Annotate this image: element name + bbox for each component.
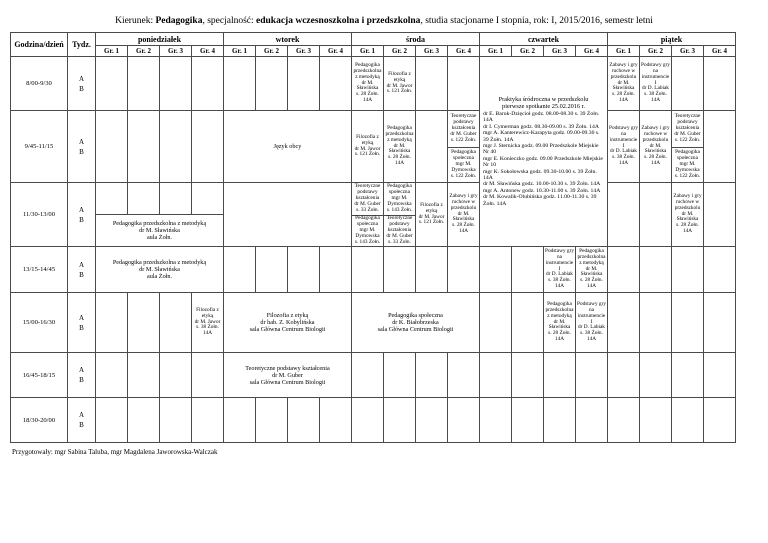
group-header: Gr. 1 — [480, 46, 512, 57]
empty-cell — [704, 398, 736, 443]
empty-cell — [704, 111, 736, 183]
empty-cell — [96, 398, 128, 443]
day-header-tuesday: wtorek — [224, 33, 352, 46]
empty-cell — [96, 57, 128, 111]
time-slot: 16/45-18/15 — [11, 353, 68, 398]
empty-cell — [256, 398, 288, 443]
empty-cell — [192, 57, 224, 111]
week-labels: AB — [68, 293, 96, 353]
prepared-by-note: Przygotowały: mgr Sabina Taluba, mgr Mag… — [12, 448, 768, 456]
empty-cell — [672, 247, 704, 293]
group-header: Gr. 3 — [416, 46, 448, 57]
group-header: Gr. 3 — [672, 46, 704, 57]
class-cell-week-b: Pedagogika przedszkolna z metodyką dr M.… — [96, 215, 223, 247]
class-cell-wed-g2-slot2: Pedagogika przedszkolna z metodyką dr M.… — [384, 111, 416, 183]
title-major: Pedagogika — [155, 16, 202, 26]
time-slot: 8/00-9/30 — [11, 57, 68, 111]
header-time-column: Godzina/dzień — [11, 33, 68, 57]
class-cell-thu-g3-slot4: Podstawy gry na instrumencie I dr D. Lab… — [544, 247, 576, 293]
empty-cell — [352, 353, 384, 398]
group-header: Gr. 2 — [128, 46, 160, 57]
empty-cell — [640, 183, 672, 247]
class-cell-week-a: Teoretyczne podstawy kształcenia dr M. G… — [352, 183, 383, 215]
empty-cell — [128, 183, 160, 214]
empty-cell — [128, 57, 160, 111]
empty-cell — [256, 57, 288, 111]
empty-cell — [608, 183, 640, 247]
time-slot: 15/00-16/30 — [11, 293, 68, 353]
empty-cell — [96, 183, 128, 214]
empty-cell — [608, 353, 640, 398]
empty-cell — [160, 57, 192, 111]
empty-cell — [480, 398, 512, 443]
empty-cell — [512, 247, 544, 293]
split-class-cell-fri-g3-slot2: Teoretyczne podstawy kształcenia dr M. G… — [672, 111, 704, 183]
timetable: Godzina/dzień Tydz. poniedziałek wtorek … — [10, 32, 736, 443]
week-labels: AB — [68, 247, 96, 293]
class-cell-thu-g3-slot5: Pedagogika przedszkolna z metodyką dr M.… — [544, 293, 576, 353]
empty-cell — [416, 247, 448, 293]
group-header: Gr. 4 — [320, 46, 352, 57]
week-labels: AB — [68, 183, 96, 247]
empty-cell — [288, 247, 320, 293]
group-header: Gr. 4 — [192, 46, 224, 57]
class-cell-week-a: Teoretyczne podstawy kształcenia dr M. G… — [672, 111, 703, 147]
empty-cell — [128, 293, 160, 353]
empty-cell — [704, 293, 736, 353]
header-week-column: Tydz. — [68, 33, 96, 57]
empty-cell — [160, 183, 192, 214]
empty-cell — [352, 247, 384, 293]
title-suffix: , studia stacjonarne I stopnia, rok: I, … — [420, 16, 652, 26]
empty-cell — [640, 353, 672, 398]
class-cell-week-a: Pedagogika społeczna mgr M. Dymowska s. … — [384, 183, 415, 215]
empty-cell — [352, 398, 384, 443]
group-header: Gr. 4 — [576, 46, 608, 57]
class-cell-week-b: Teoretyczne podstawy kształcenia dr M. G… — [384, 215, 415, 247]
empty-cell — [288, 398, 320, 443]
empty-cell — [416, 398, 448, 443]
empty-cell — [128, 111, 160, 183]
empty-cell — [672, 398, 704, 443]
empty-cell — [416, 57, 448, 111]
empty-cell — [192, 183, 223, 214]
split-class-cell-mon-all-slot3: Pedagogika przedszkolna z metodyką dr M.… — [96, 183, 224, 247]
empty-cell — [512, 398, 544, 443]
title-specialty: edukacja wczesnoszkolna i przedszkolna — [256, 16, 420, 26]
time-slot: 13/15-14/45 — [11, 247, 68, 293]
group-header: Gr. 1 — [224, 46, 256, 57]
week-labels: AB — [68, 353, 96, 398]
week-a-empty-row — [96, 183, 223, 215]
week-a-label: A — [68, 260, 95, 270]
empty-cell — [160, 353, 192, 398]
empty-cell — [480, 293, 512, 353]
day-header-wednesday: środa — [352, 33, 480, 46]
split-class-cell-wed-g1-slot3: Teoretyczne podstawy kształcenia dr M. G… — [352, 183, 384, 247]
empty-cell — [384, 247, 416, 293]
week-a-label: A — [68, 74, 95, 84]
group-header: Gr. 4 — [448, 46, 480, 57]
group-header: Gr. 1 — [608, 46, 640, 57]
empty-cell — [448, 398, 480, 443]
class-cell-mon-all-slot4: Pedagogika przedszkolna z metodyką dr M.… — [96, 247, 224, 293]
group-header: Gr. 3 — [544, 46, 576, 57]
empty-cell — [160, 398, 192, 443]
empty-cell — [512, 353, 544, 398]
empty-cell — [608, 398, 640, 443]
group-header: Gr. 3 — [160, 46, 192, 57]
week-b-label: B — [68, 323, 95, 333]
empty-cell — [672, 57, 704, 111]
empty-cell — [160, 293, 192, 353]
week-b-label: B — [68, 375, 95, 385]
week-a-label: A — [68, 205, 95, 215]
praktyka-cell-thursday: Praktyka śródroczna w przedszkolu pierws… — [480, 57, 608, 247]
class-cell-wed-g1-slot1: Pedagogika przedszkolna z metodyką dr M.… — [352, 57, 384, 111]
empty-cell — [608, 247, 640, 293]
empty-cell — [544, 353, 576, 398]
empty-cell — [192, 111, 224, 183]
empty-cell — [672, 293, 704, 353]
class-cell-mon-g4-slot5: Filozofia z etyką dr M. Jawor s. 38 Żołn… — [192, 293, 224, 353]
empty-cell — [192, 398, 224, 443]
class-cell-fri-g2-slot1: Podstawy gry na instrumencie I dr D. Lab… — [640, 57, 672, 111]
empty-cell — [448, 57, 480, 111]
class-cell-tue-all-slot6: Teoretyczne podstawy kształcenia dr M. G… — [224, 353, 352, 398]
week-b-label: B — [68, 270, 95, 280]
class-cell-wed-g4-slot3: Zabawy i gry ruchowe w przedszkolu dr M.… — [448, 183, 480, 247]
week-labels: AB — [68, 111, 96, 183]
time-slot: 11/30-13/00 — [11, 183, 68, 247]
empty-cell — [480, 247, 512, 293]
empty-cell — [192, 353, 224, 398]
week-a-label: A — [68, 365, 95, 375]
week-b-label: B — [68, 147, 95, 157]
class-cell-wed-g1-slot2: Filozofia z etyką dr M. Jawor s. 121 Żoł… — [352, 111, 384, 183]
empty-cell — [608, 293, 640, 353]
empty-cell — [416, 353, 448, 398]
week-b-label: B — [68, 84, 95, 94]
class-cell-week-b: Pedagogika społeczna mgr M. Dymowska s. … — [672, 147, 703, 183]
class-cell-week-b: Pedagogika społeczna mgr M. Dymowska s. … — [352, 215, 383, 247]
praktyka-subtitle: pierwsze spotkanie 25.02.2016 r. — [480, 103, 607, 110]
group-header: Gr. 2 — [512, 46, 544, 57]
class-cell-tue-all-slot2: Język obcy — [224, 111, 352, 183]
empty-cell — [320, 57, 352, 111]
week-b-label: B — [68, 215, 95, 225]
title-separator: , specjalność: — [202, 16, 256, 26]
empty-cell — [384, 353, 416, 398]
week-a-label: A — [68, 313, 95, 323]
class-cell-fri-g1-slot2: Podstawy gry na instrumencie I dr D. Lab… — [608, 111, 640, 183]
empty-cell — [416, 111, 448, 183]
empty-cell — [96, 353, 128, 398]
empty-cell — [672, 353, 704, 398]
day-header-monday: poniedziałek — [96, 33, 224, 46]
empty-cell — [704, 353, 736, 398]
title-prefix: Kierunek: — [115, 16, 155, 26]
group-header: Gr. 4 — [704, 46, 736, 57]
group-header: Gr. 3 — [288, 46, 320, 57]
empty-cell — [704, 183, 736, 247]
class-cell-wed-g2-slot1: Filozofia z etyką dr M. Jawor s. 121 Żoł… — [384, 57, 416, 111]
split-class-cell-wed-g4-slot2: Teoretyczne podstawy kształcenia dr M. G… — [448, 111, 480, 183]
week-labels: AB — [68, 57, 96, 111]
empty-cell — [384, 398, 416, 443]
class-cell-fri-g1-slot1: Zabawy i gry ruchowe w przedszkolu dr M.… — [608, 57, 640, 111]
class-cell-week-b: Pedagogika społeczna mgr M. Dymowska s. … — [448, 147, 479, 183]
day-header-thursday: czwartek — [480, 33, 608, 46]
empty-cell — [224, 247, 256, 293]
split-class-cell-wed-g2-slot3: Pedagogika społeczna mgr M. Dymowska s. … — [384, 183, 416, 247]
empty-cell — [320, 247, 352, 293]
time-slot: 9/45-11/15 — [11, 111, 68, 183]
class-cell-wed-g3-slot3: Filozofia z etyką dr M. Jawor s. 121 Żoł… — [416, 183, 448, 247]
class-cell-fri-g2-slot2: Zabawy i gry ruchowe w przedszkolu dr M.… — [640, 111, 672, 183]
group-header: Gr. 2 — [384, 46, 416, 57]
group-header: Gr. 2 — [256, 46, 288, 57]
page-title: Kierunek: Pedagogika, specjalność: eduka… — [0, 0, 768, 26]
empty-cell — [96, 293, 128, 353]
empty-cell — [160, 111, 192, 183]
empty-cell — [448, 353, 480, 398]
week-labels: AB — [68, 398, 96, 443]
class-cell-fri-g3-slot3: Zabawy i gry ruchowe w przedszkolu dr M.… — [672, 183, 704, 247]
group-header: Gr. 2 — [640, 46, 672, 57]
empty-cell — [640, 293, 672, 353]
time-slot: 18/30-20/00 — [11, 398, 68, 443]
class-cell-wed-all-slot5: Pedagogika społeczna dr K. Białobrzeska … — [352, 293, 480, 353]
empty-cell — [704, 57, 736, 111]
empty-cell — [576, 353, 608, 398]
empty-cell — [640, 398, 672, 443]
praktyka-entries: dr E. Baruk-Dzięcioł godz. 08.00-08.30 s… — [480, 111, 607, 207]
empty-cell — [448, 247, 480, 293]
empty-cell — [128, 398, 160, 443]
empty-cell — [96, 111, 128, 183]
empty-cell — [320, 398, 352, 443]
empty-cell — [224, 398, 256, 443]
class-cell-tue-all-slot5: Filozofia z etyką dr hab. Z. Kobylińska … — [224, 293, 352, 353]
empty-cell — [576, 398, 608, 443]
empty-cell — [512, 293, 544, 353]
group-header: Gr. 1 — [96, 46, 128, 57]
week-a-label: A — [68, 137, 95, 147]
empty-cell — [128, 353, 160, 398]
empty-cell — [288, 57, 320, 111]
class-cell-week-a: Teoretyczne podstawy kształcenia dr M. G… — [448, 111, 479, 147]
week-a-label: A — [68, 410, 95, 420]
day-header-friday: piątek — [608, 33, 736, 46]
group-header: Gr. 1 — [352, 46, 384, 57]
praktyka-title: Praktyka śródroczna w przedszkolu — [480, 96, 607, 103]
empty-cell — [640, 247, 672, 293]
empty-cell — [224, 183, 352, 247]
week-b-label: B — [68, 420, 95, 430]
empty-cell — [544, 398, 576, 443]
empty-cell — [256, 247, 288, 293]
empty-cell — [704, 247, 736, 293]
class-cell-thu-g4-slot5: Podstawy gry na instrumencie I dr D. Lab… — [576, 293, 608, 353]
empty-cell — [480, 353, 512, 398]
class-cell-thu-g4-slot4: Pedagogika przedszkolna z metodyką dr M.… — [576, 247, 608, 293]
empty-cell — [224, 57, 256, 111]
